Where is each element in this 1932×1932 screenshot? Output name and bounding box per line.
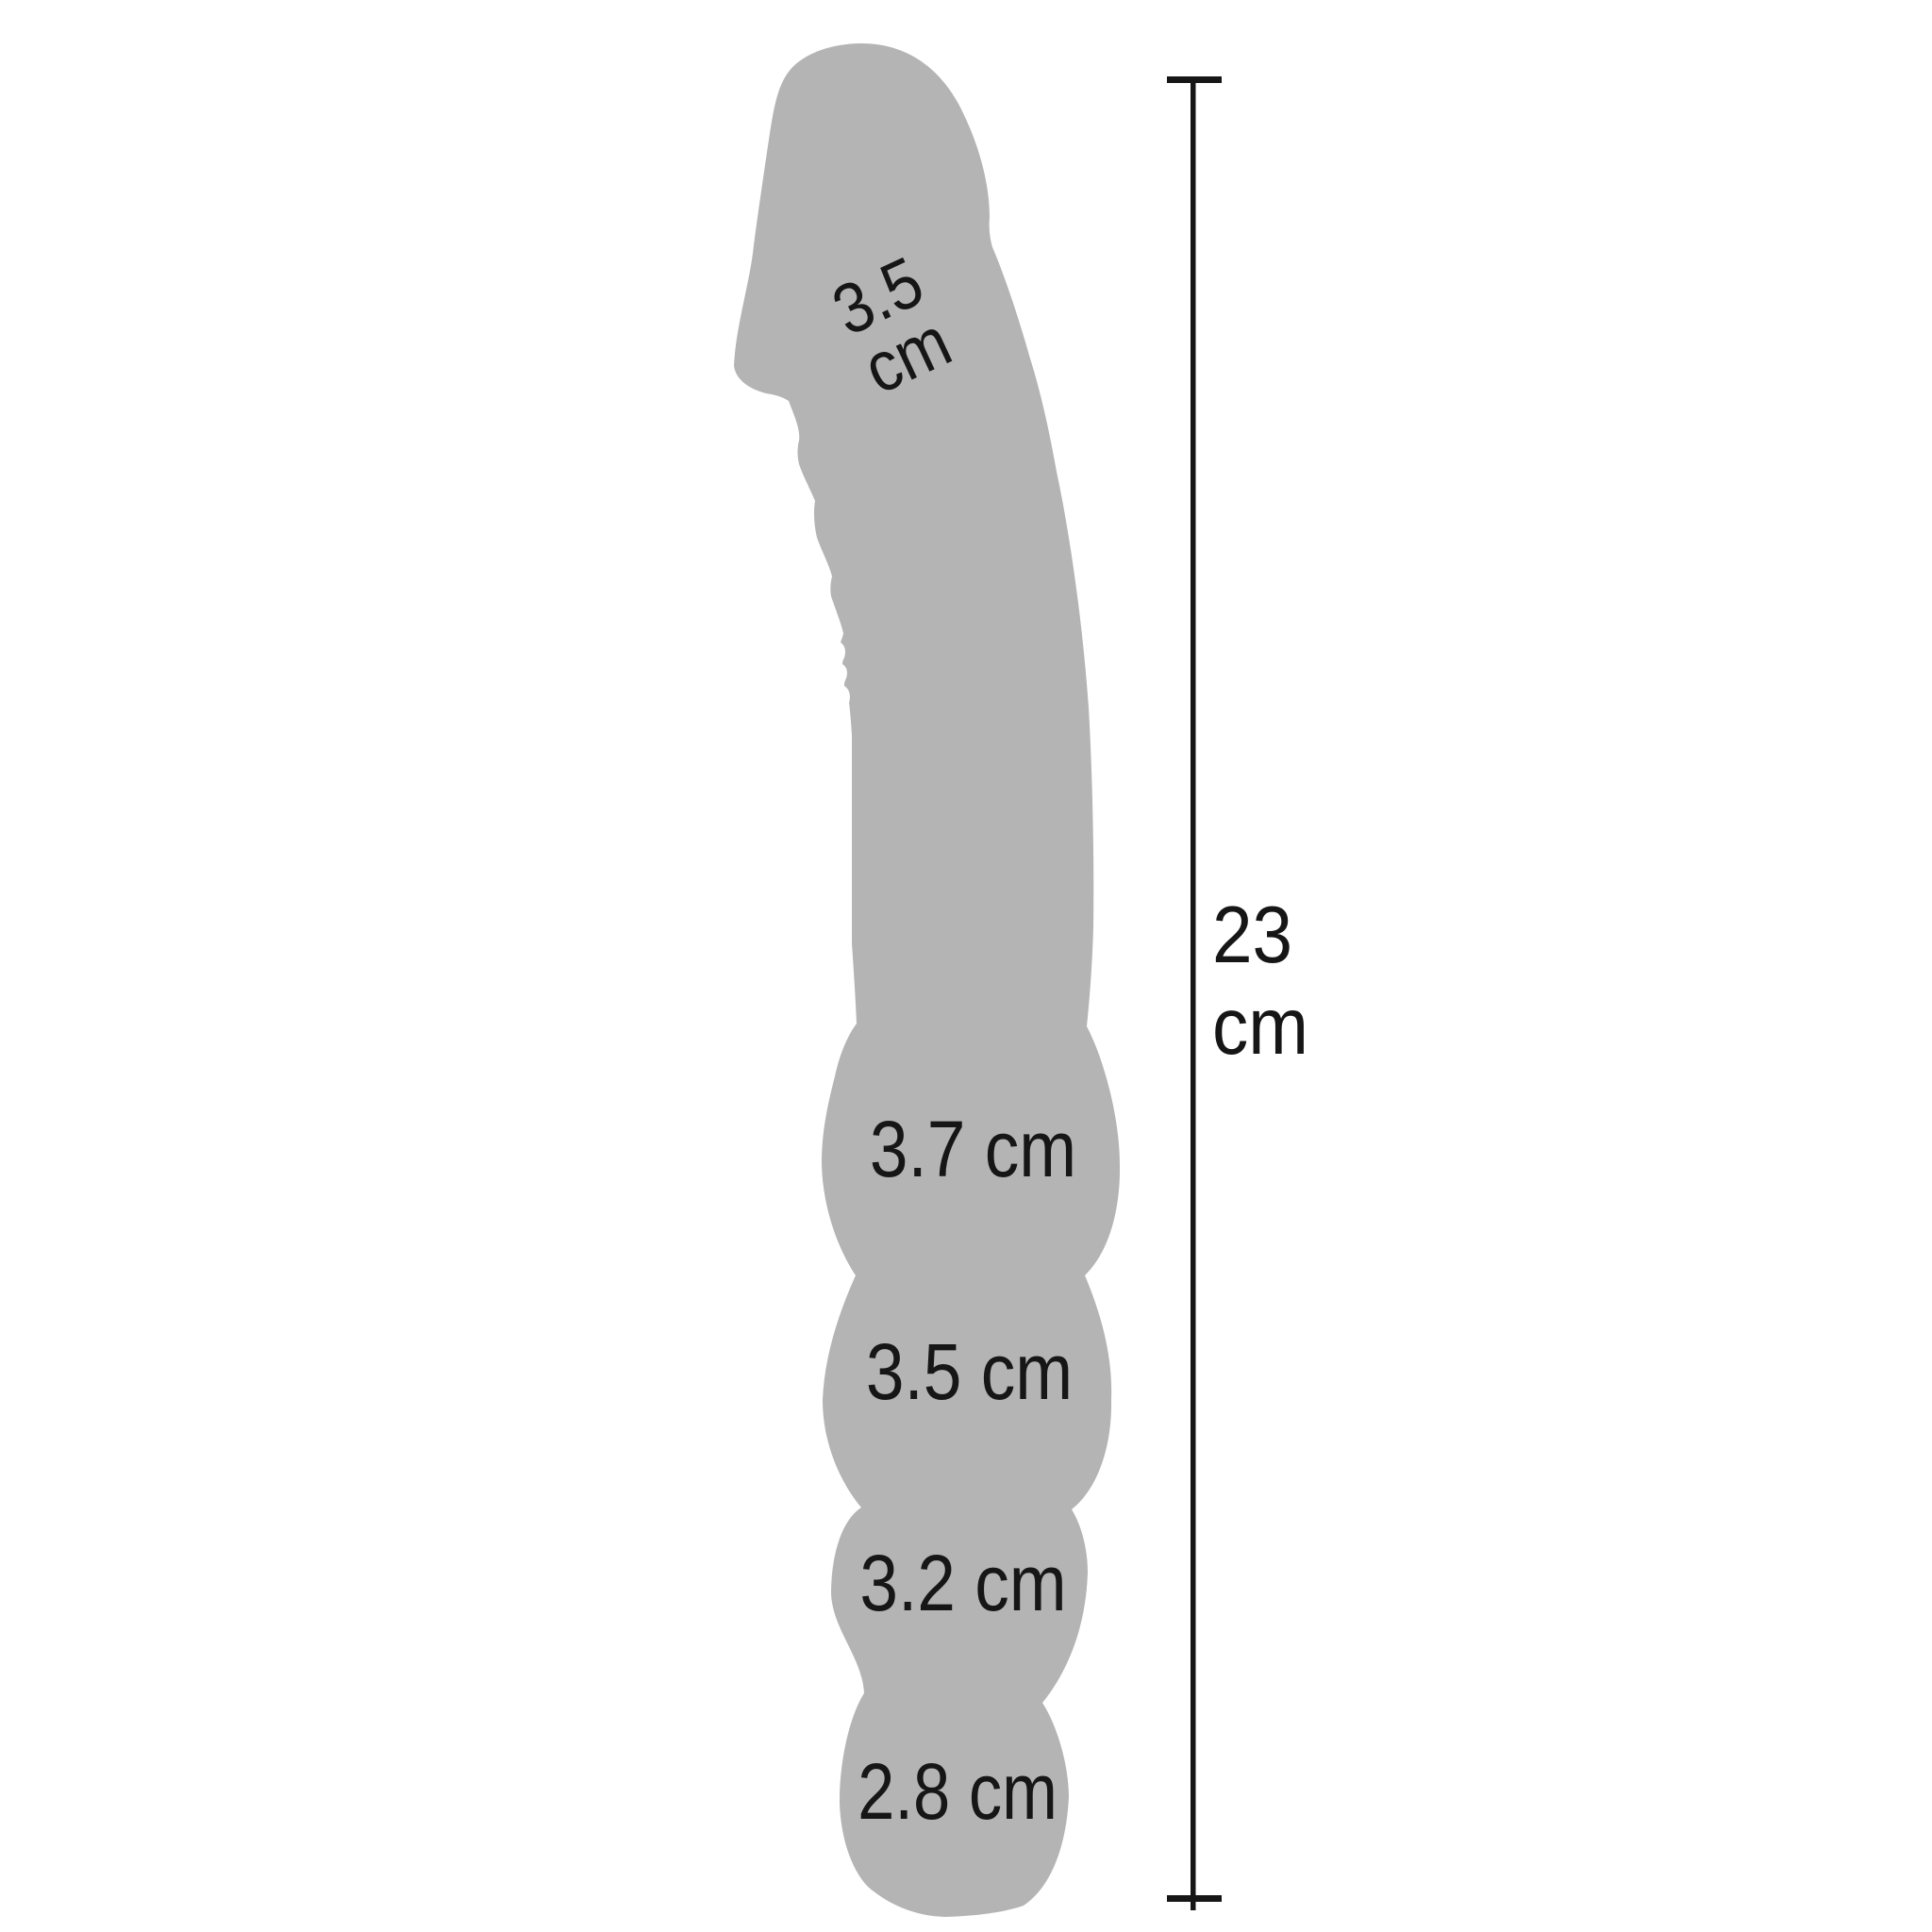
svg-text:2.8 cm: 2.8 cm: [858, 1748, 1058, 1836]
svg-text:cm: cm: [1212, 982, 1308, 1072]
svg-text:23: 23: [1212, 891, 1292, 980]
svg-text:3.5 cm: 3.5 cm: [866, 1327, 1073, 1416]
svg-text:3.7 cm: 3.7 cm: [870, 1105, 1076, 1193]
svg-text:3.2 cm: 3.2 cm: [859, 1539, 1066, 1627]
